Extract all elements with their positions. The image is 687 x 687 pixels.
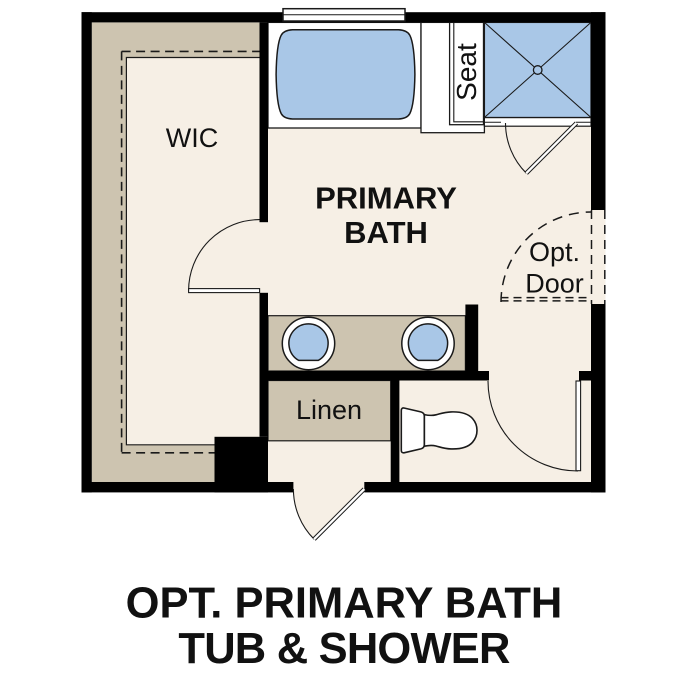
svg-text:BATH: BATH — [344, 215, 428, 250]
svg-text:PRIMARY: PRIMARY — [315, 181, 457, 216]
svg-text:WIC: WIC — [166, 123, 218, 153]
svg-text:TUB & SHOWER: TUB & SHOWER — [178, 625, 510, 673]
svg-text:Opt.: Opt. — [529, 237, 580, 267]
svg-text:OPT. PRIMARY BATH: OPT. PRIMARY BATH — [126, 579, 563, 627]
svg-text:Seat: Seat — [451, 43, 482, 101]
svg-text:Linen: Linen — [296, 395, 362, 425]
svg-text:Door: Door — [525, 269, 584, 299]
